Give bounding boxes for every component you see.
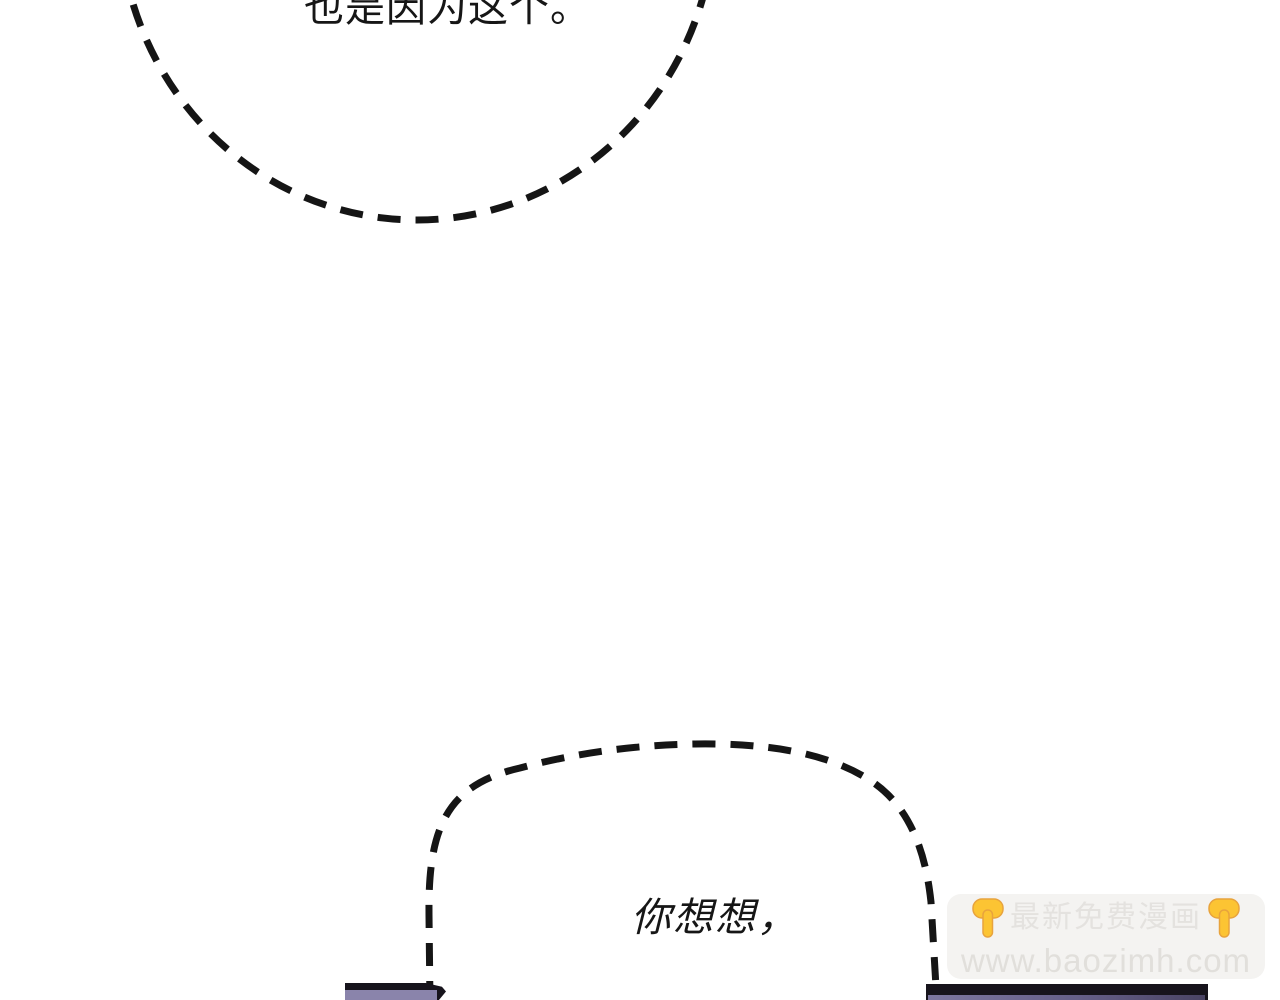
pointing-down-icon xyxy=(1204,896,1244,940)
watermark-box: 最新免费漫画 www.baozimh.com xyxy=(947,894,1265,979)
right-furniture-edge xyxy=(926,984,1208,1000)
comic-page: 也是因为这个。 你想想， 最新免费漫画 www.baozimh.com xyxy=(0,0,1280,1000)
left-furniture-edge xyxy=(345,983,446,1000)
watermark-url: www.baozimh.com xyxy=(961,944,1251,977)
top-bubble-text: 也是因为这个。 xyxy=(304,0,591,30)
left-furniture-fill xyxy=(345,990,437,1000)
right-furniture-fill xyxy=(928,995,1205,1000)
bottom-bubble-outline xyxy=(429,744,937,1000)
speech-bubbles-layer xyxy=(0,0,1280,1000)
watermark-line1: 最新免费漫画 xyxy=(968,896,1244,940)
watermark-line1-text: 最新免费漫画 xyxy=(1010,903,1202,933)
pointing-down-icon xyxy=(968,896,1008,940)
top-bubble-outline xyxy=(119,0,715,220)
bottom-bubble-text: 你想想， xyxy=(631,896,799,940)
